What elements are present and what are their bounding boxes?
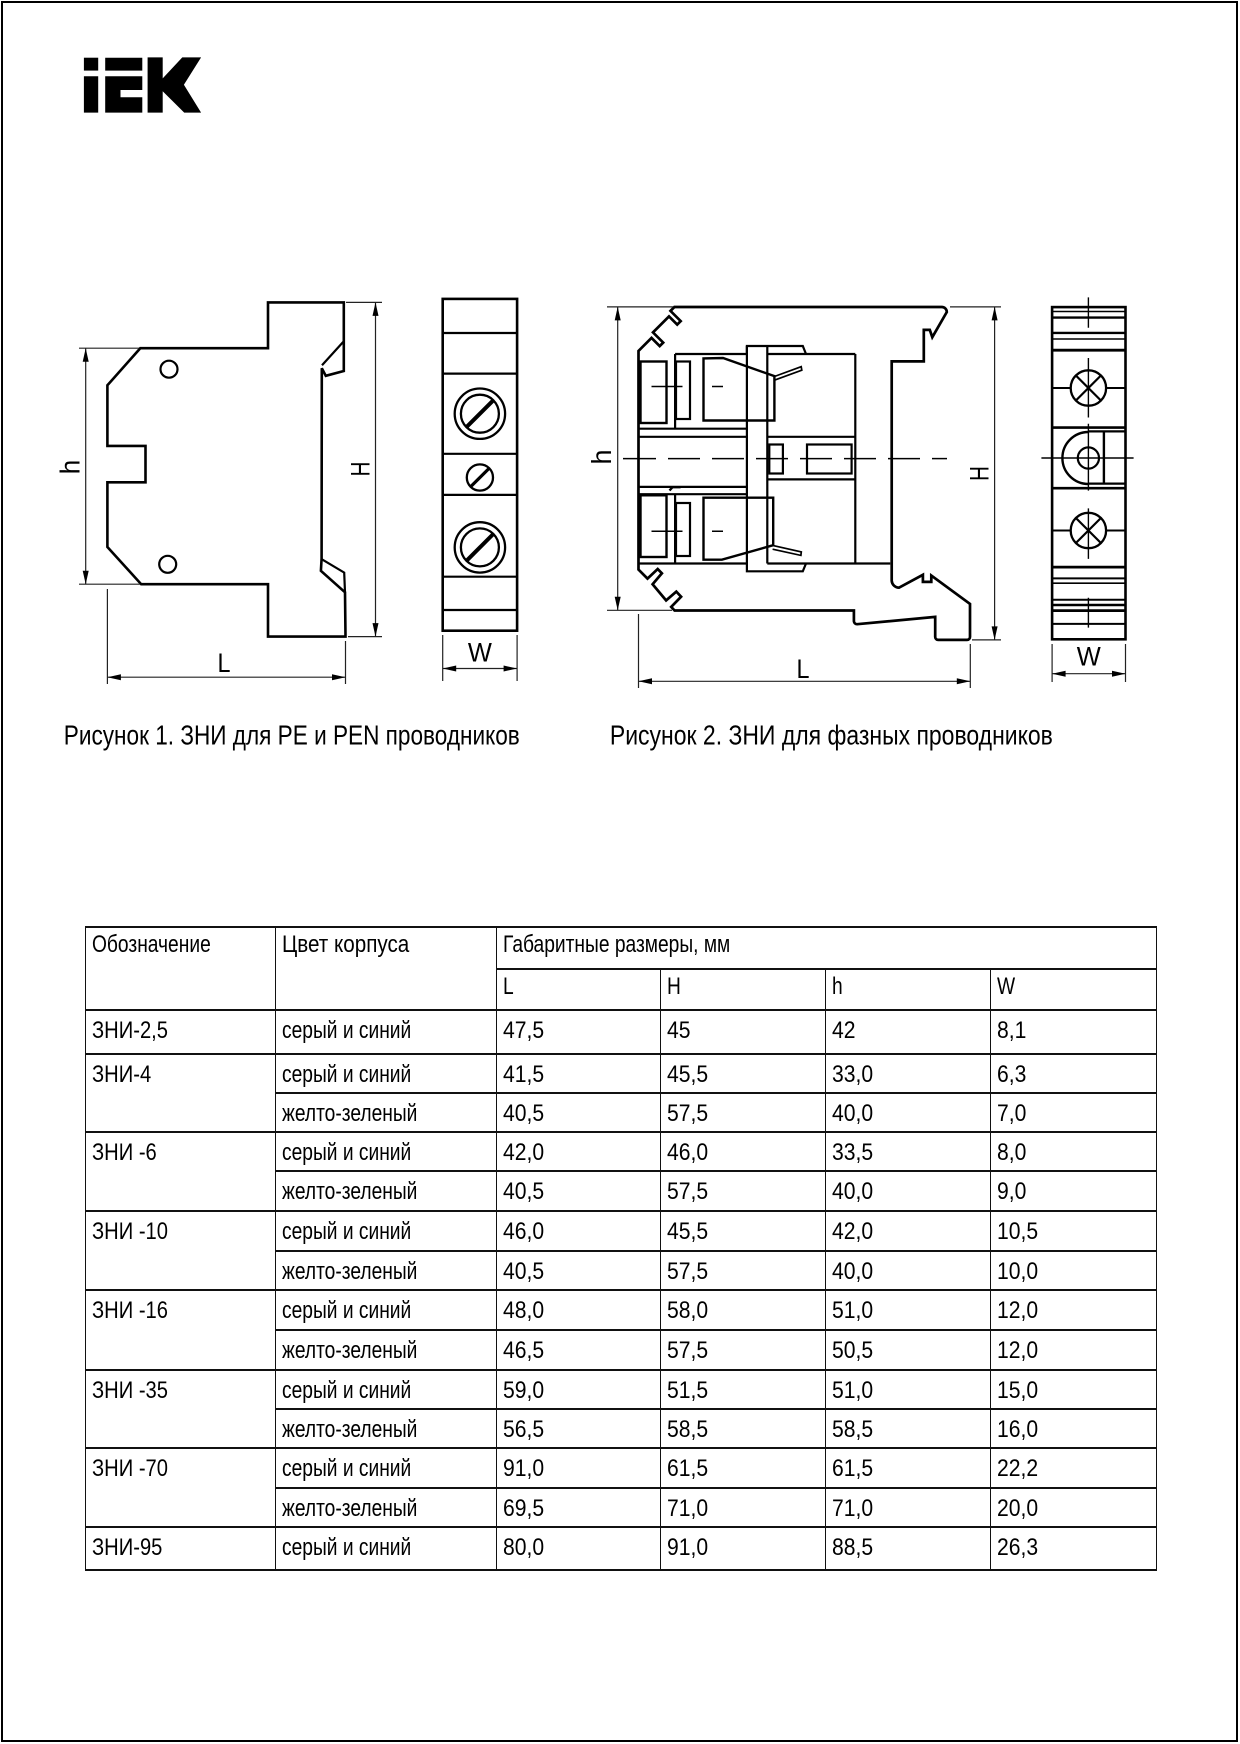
svg-text:Рисунок 1. ЗНИ для PE и PEN пр: Рисунок 1. ЗНИ для PE и PEN проводников [64, 719, 520, 750]
svg-text:H: H [346, 462, 376, 477]
svg-text:h: h [55, 460, 86, 475]
svg-text:H: H [965, 466, 995, 481]
svg-text:h: h [586, 450, 617, 465]
svg-text:W: W [1077, 642, 1101, 672]
svg-text:W: W [468, 638, 492, 668]
svg-text:Рисунок 2. ЗНИ для фазных пров: Рисунок 2. ЗНИ для фазных проводников [610, 719, 1053, 750]
svg-text:L: L [797, 654, 810, 684]
svg-text:L: L [218, 648, 231, 678]
